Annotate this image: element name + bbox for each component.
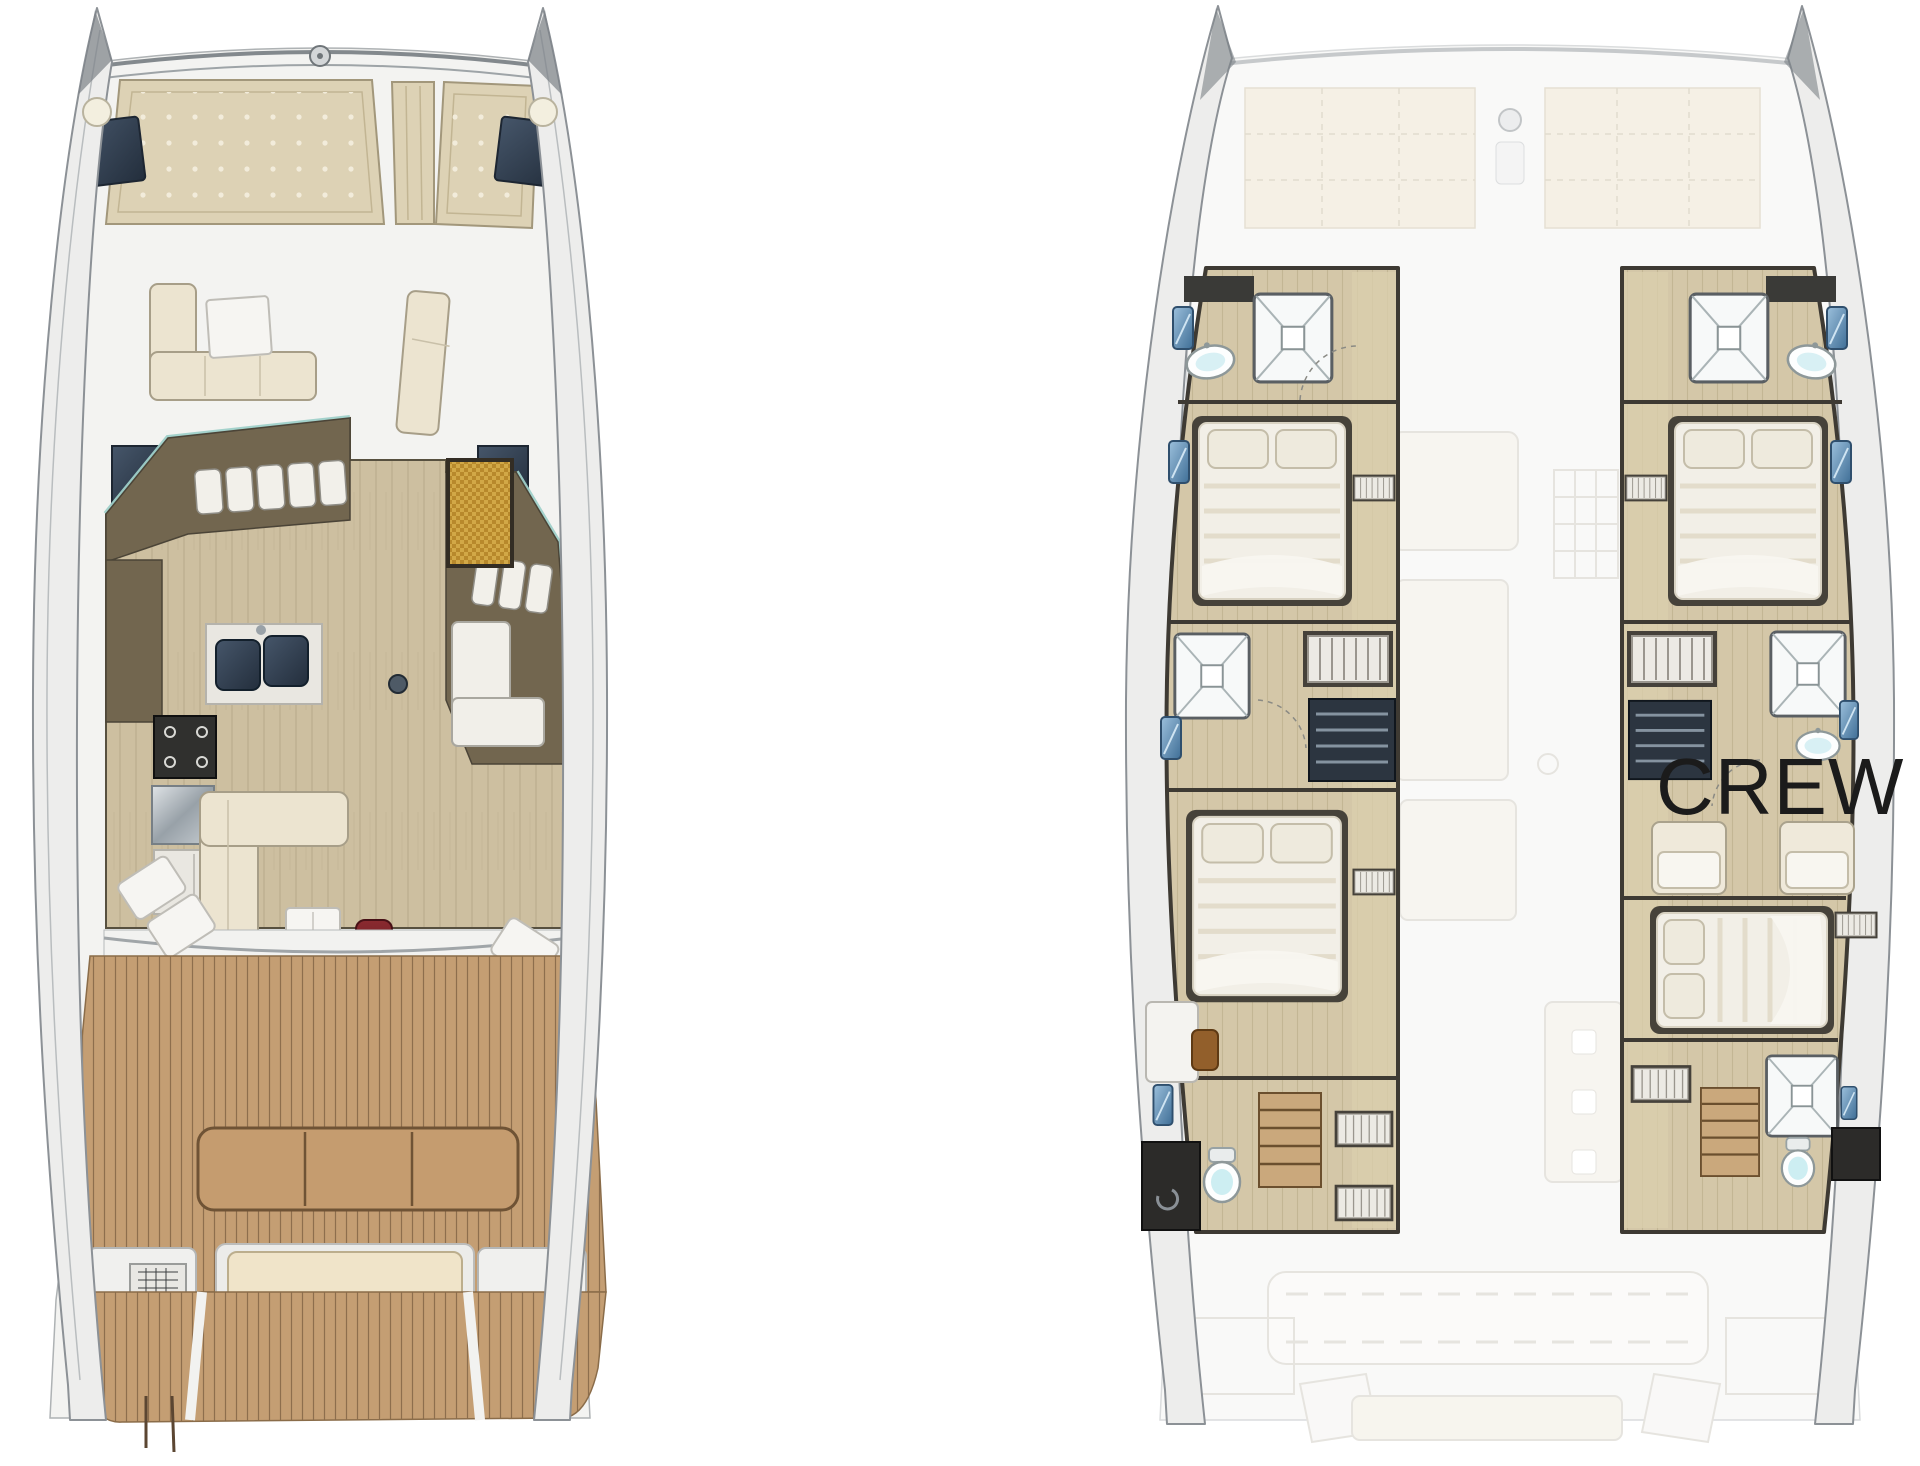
wardrobe-icon — [1624, 475, 1667, 502]
shower-icon — [1690, 294, 1768, 382]
desk-chair — [1192, 1030, 1218, 1070]
ghost-sunpad — [1245, 88, 1475, 228]
starboard-bow-fender — [529, 98, 557, 126]
swim-platform — [64, 1292, 606, 1452]
vanity-counter — [1766, 276, 1836, 302]
shower-icon — [1254, 294, 1332, 382]
foredeck-table — [206, 296, 272, 358]
galley-sink-icon — [216, 640, 260, 690]
wardrobe-icon — [1335, 1185, 1394, 1222]
shower-icon — [1771, 632, 1845, 716]
port-bow-fender — [83, 98, 111, 126]
window-icon — [1161, 717, 1181, 759]
galley-sink-icon — [264, 636, 308, 686]
wardrobe-icon — [1352, 869, 1395, 896]
nav-settee-seat — [452, 698, 544, 746]
shower-icon — [1767, 1056, 1838, 1136]
shower-icon — [1175, 634, 1249, 718]
faucet-icon — [256, 625, 266, 635]
windlass-pin — [317, 53, 323, 59]
sunpad-center-panel — [392, 82, 434, 224]
cupboard-door — [256, 464, 285, 510]
ghost-cockpit-table — [1268, 1272, 1708, 1364]
window-icon — [1831, 441, 1851, 483]
c-sofa-top-arm — [200, 792, 348, 846]
ghost-windlass — [1499, 109, 1521, 131]
window-icon — [1153, 1085, 1172, 1125]
cockpit-table — [198, 1128, 518, 1210]
catamaran-layout-canvas: CREW — [0, 0, 1920, 1466]
table-leg-mount — [389, 675, 407, 693]
galley-counter-side — [106, 560, 162, 722]
ghost-island-dot — [1572, 1030, 1596, 1054]
sunpad-tufting — [118, 92, 372, 212]
ghost-island-dot — [1572, 1150, 1596, 1174]
lower-deck-plan: CREW — [1126, 6, 1904, 1442]
ghost-galley — [1400, 800, 1516, 920]
aft-cockpit — [64, 956, 606, 1324]
cupboard-door — [225, 467, 254, 513]
window-icon — [1840, 701, 1858, 739]
berth-pillow — [1786, 852, 1848, 888]
wardrobe-icon — [1631, 1065, 1692, 1103]
ghost-davit — [1642, 1374, 1720, 1442]
berth-pillow — [1658, 852, 1720, 888]
bed-icon — [1186, 810, 1348, 1002]
cupboard-door — [318, 460, 347, 506]
ghost-island-dot — [1572, 1090, 1596, 1114]
vanity-counter — [1184, 276, 1254, 302]
wet-locker — [1142, 1142, 1200, 1230]
stairs-icon — [1701, 1088, 1759, 1176]
wardrobe-icon — [1834, 912, 1877, 939]
lounge-sofa-seat — [150, 352, 316, 400]
toilet-icon — [1782, 1138, 1814, 1186]
wardrobe-icon — [1627, 631, 1717, 687]
bed-icon — [1192, 416, 1352, 606]
cupboard-door — [287, 462, 316, 508]
stairs-icon — [1259, 1093, 1321, 1187]
wet-locker — [1832, 1128, 1880, 1180]
door-mat-icon — [448, 460, 512, 566]
wardrobe-icon — [1303, 631, 1393, 687]
ghost-sunpad — [1545, 88, 1760, 228]
cockpit-teak-floor — [64, 956, 606, 1292]
stairs-icon — [1309, 699, 1395, 781]
window-icon — [1827, 307, 1847, 349]
ghost-fitting — [1496, 142, 1524, 184]
bow-sunpads — [106, 80, 538, 228]
ghost-sofa — [1392, 432, 1518, 550]
stove-icon — [154, 716, 216, 778]
bed-icon — [1650, 906, 1834, 1034]
wardrobe-icon — [1335, 1111, 1394, 1148]
window-icon — [1169, 441, 1189, 483]
main-deck-plan — [33, 8, 607, 1452]
crew-cabin-label: CREW — [1656, 742, 1904, 831]
window-icon — [1173, 307, 1193, 349]
catamaran-layout-page: CREW — [0, 0, 1920, 1466]
stanchion — [172, 1396, 174, 1452]
ghost-bench — [1396, 580, 1508, 780]
toilet-icon — [1204, 1148, 1240, 1202]
bed-icon — [1668, 416, 1828, 606]
ghost-transom-bench — [1352, 1396, 1622, 1440]
cupboard-door — [194, 469, 223, 515]
wardrobe-icon — [1352, 475, 1395, 502]
vanity-desk — [1146, 1002, 1198, 1082]
window-icon — [1841, 1087, 1856, 1119]
